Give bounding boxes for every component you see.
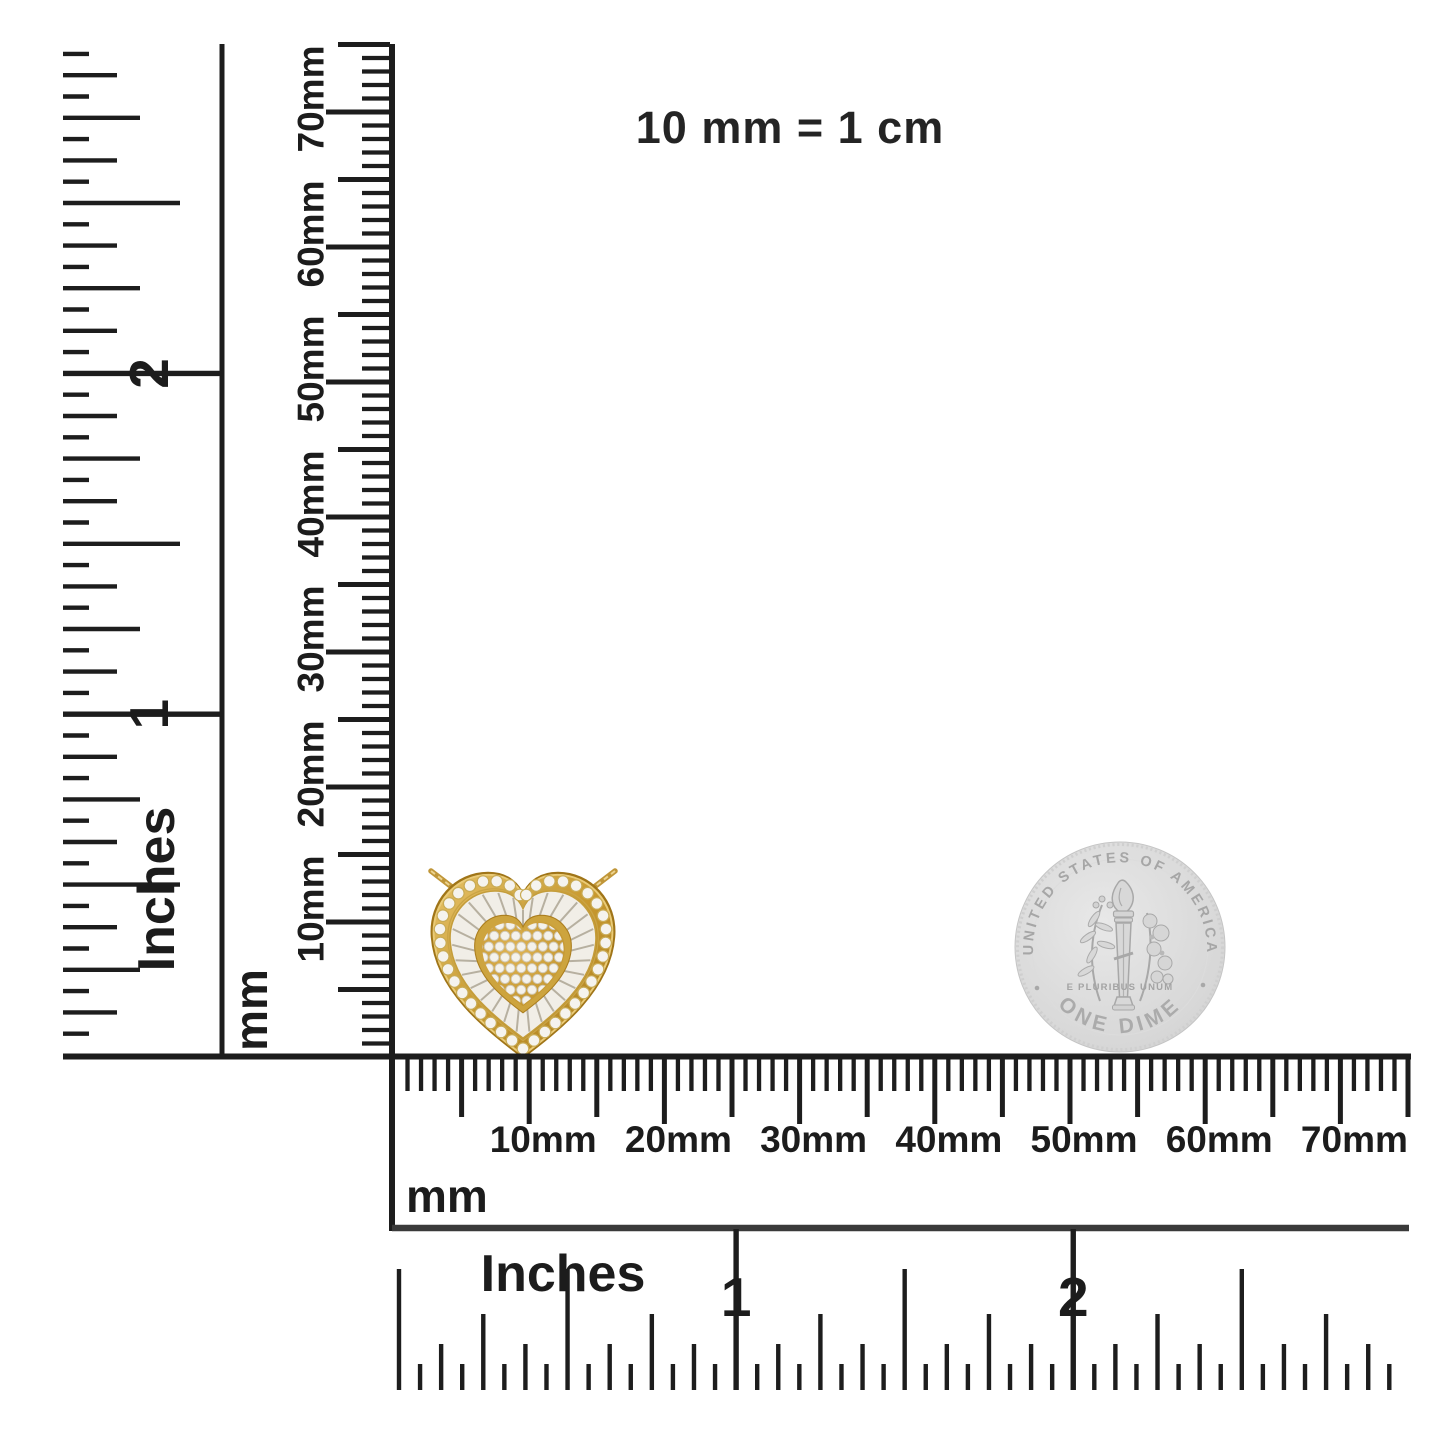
halo-stone [504, 880, 516, 892]
pave-stone [517, 985, 526, 994]
pave-stone [544, 931, 553, 940]
halo-stone [435, 937, 447, 949]
pave-stone [527, 985, 536, 994]
halo-stone [557, 876, 569, 888]
left-mm-label: 60mm [291, 181, 332, 288]
halo-stone [597, 951, 609, 963]
pave-stone [533, 931, 542, 940]
oak-leaf-cluster [1153, 925, 1169, 941]
torch-band-top [1114, 911, 1134, 917]
oak-leaf-cluster [1143, 914, 1157, 928]
pave-stone [533, 953, 542, 962]
pave-stone [484, 942, 493, 951]
halo-stone [530, 880, 542, 892]
pave-stone [522, 953, 531, 962]
pave-stone [506, 964, 515, 973]
heart-pendant [431, 871, 615, 1057]
pave-stone [490, 931, 499, 940]
halo-stone [437, 910, 449, 922]
coin-left-dot [1035, 986, 1040, 991]
baguette-line [567, 960, 591, 961]
oak-acorn [1160, 951, 1165, 956]
halo-stone [550, 1017, 562, 1029]
halo-stone [449, 976, 461, 988]
halo-stone [465, 998, 477, 1010]
halo-stone [544, 876, 556, 888]
pave-stone [549, 942, 558, 951]
left-mm-label: 40mm [291, 451, 332, 558]
pave-stone [500, 974, 509, 983]
rulers: 1210mm20mm30mm40mm50mm60mm70mm10mm20mm30… [63, 44, 1411, 1390]
scene: UNITED STATES OF AMERICA ONE DIME E PLUR… [0, 0, 1445, 1445]
dime-coin: UNITED STATES OF AMERICA ONE DIME E PLUR… [1015, 842, 1225, 1052]
oak-acorn [1150, 935, 1155, 940]
left-inch-number: 1 [118, 699, 180, 730]
halo-stone [495, 1026, 507, 1038]
conversion-note: 10 mm = 1 cm [636, 102, 944, 153]
bottom-mm-label: 70mm [1301, 1119, 1408, 1160]
bottom-mm-label: 10mm [490, 1119, 597, 1160]
baguette-line [456, 960, 480, 961]
coin-right-dot [1201, 983, 1206, 988]
bottom-inch-number: 1 [721, 1266, 752, 1328]
halo-stone [578, 987, 590, 999]
left-inch-number: 2 [118, 358, 180, 389]
pave-stone [517, 964, 526, 973]
halo-stone [506, 1035, 518, 1047]
halo-stone [560, 1008, 572, 1020]
halo-stone [517, 1043, 529, 1055]
bottom-mm-label: 50mm [1031, 1119, 1138, 1160]
halo-stone [453, 887, 465, 899]
oak-leaf-cluster [1158, 956, 1172, 970]
oak-leaf-cluster [1147, 942, 1161, 956]
olive-bud [1093, 902, 1099, 908]
left-mm-unit-label: mm [225, 969, 277, 1051]
bottom-mm-label: 30mm [760, 1119, 867, 1160]
pave-stone [511, 953, 520, 962]
pave-stone [517, 942, 526, 951]
halo-stone [586, 976, 598, 988]
pave-stone [500, 931, 509, 940]
halo-stone [569, 998, 581, 1010]
torch-foot [1113, 1005, 1135, 1010]
halo-stone [521, 889, 533, 901]
torch-band [1115, 918, 1133, 922]
halo-stone [464, 880, 476, 892]
left-mm-label: 70mm [291, 46, 332, 153]
halo-stone [434, 923, 446, 935]
bottom-mm-label: 40mm [895, 1119, 1002, 1160]
pave-stone [506, 942, 515, 951]
halo-stone [592, 964, 604, 976]
bottom-mm-unit-label: mm [406, 1170, 488, 1222]
halo-stone [477, 876, 489, 888]
pave-stone [511, 974, 520, 983]
coin-motto-text: E PLURIBUS UNUM [1067, 982, 1174, 993]
bottom-inch-number: 2 [1058, 1266, 1089, 1328]
left-inches-unit-label: Inches [128, 807, 186, 972]
halo-stone [437, 951, 449, 963]
olive-bud [1099, 896, 1105, 902]
pave-stone [527, 942, 536, 951]
halo-stone [597, 910, 609, 922]
bottom-mm-label: 60mm [1166, 1119, 1273, 1160]
halo-stone [485, 1017, 497, 1029]
halo-stone [539, 1026, 551, 1038]
left-mm-label: 30mm [291, 586, 332, 693]
left-mm-label: 20mm [291, 721, 332, 828]
pave-stone [538, 964, 547, 973]
halo-stone [443, 898, 455, 910]
pave-stone [527, 964, 536, 973]
left-mm-label: 50mm [291, 316, 332, 423]
olive-bud [1107, 902, 1113, 908]
pave-stone [522, 974, 531, 983]
pave-stone [538, 942, 547, 951]
halo-stone [528, 1035, 540, 1047]
jewelry-scale-photo: UNITED STATES OF AMERICA ONE DIME E PLUR… [0, 0, 1445, 1445]
pave-stone [511, 931, 520, 940]
halo-stone [582, 887, 594, 899]
pave-stone [533, 974, 542, 983]
pave-stone [490, 953, 499, 962]
halo-stone [475, 1008, 487, 1020]
pave-stone [495, 942, 504, 951]
pave-stone [500, 953, 509, 962]
left-mm-label: 10mm [291, 856, 332, 963]
halo-stone [591, 898, 603, 910]
pave-stone [495, 964, 504, 973]
bottom-mm-label: 20mm [625, 1119, 732, 1160]
halo-stone [570, 880, 582, 892]
pave-stone [544, 953, 553, 962]
halo-stone [600, 937, 612, 949]
halo-stone [442, 964, 454, 976]
bottom-inches-unit-label: Inches [481, 1245, 646, 1303]
halo-stone [600, 923, 612, 935]
halo-stone [457, 987, 469, 999]
pave-stone [522, 931, 531, 940]
halo-stone [491, 876, 503, 888]
